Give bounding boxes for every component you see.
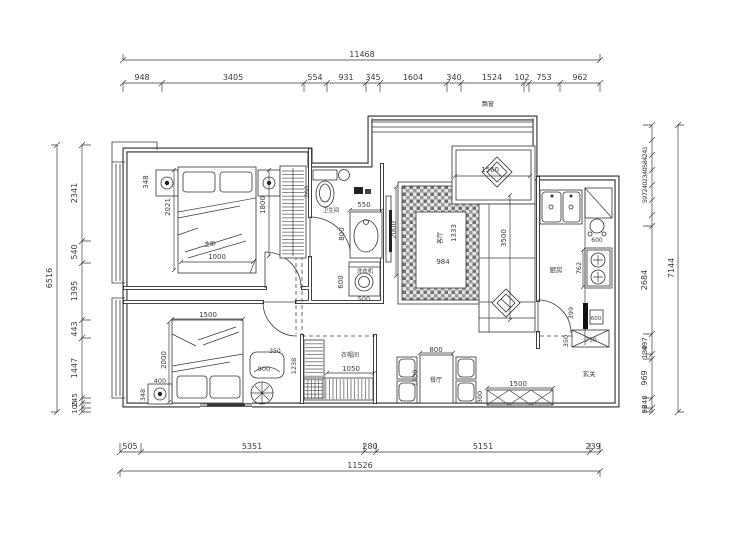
dim-top-seg: 753 [536,73,551,82]
room-label-kitchen: 厨房 [550,265,563,274]
dim-bottom-seg: 280 [362,442,377,451]
dim-master-2021: 2021 [164,198,172,216]
dim-kitchen-399: 399 [567,307,575,319]
dim-top-seg: 962 [572,73,587,82]
dim-bed2-400: 400 [154,377,166,385]
dim-dining-1200: 1200 [411,370,419,387]
dim-bottom-seg: 505 [122,442,137,451]
dim-right-seg: 2684 [640,270,649,290]
dim-top-seg: 948 [134,73,149,82]
dim-bottom-seg: 5151 [473,442,493,451]
dim-left-total: 6516 [45,268,54,288]
dim-living-1560: 1560 [481,166,499,174]
dim-bath-550: 550 [357,201,370,209]
room-label-dining: 餐厅 [430,376,442,384]
bathroom [313,170,382,297]
dimension-bottom: 505 5351 280 5151 239 11526 [117,442,603,477]
room-label-bathroom: 卫生间 [323,206,340,214]
dim-top-seg: 931 [338,73,353,82]
door-bedroom2 [263,302,297,336]
dim-left-seg: 2341 [70,183,79,203]
dim-right-total: 7144 [667,258,676,278]
dim-top-seg: 1604 [403,73,423,82]
living-room [386,146,535,332]
room-label-living: 客厅 [436,232,444,244]
room-label-master: 主卧 [204,240,216,248]
bay-window-top [372,118,533,135]
dim-left-seg: 1395 [70,281,79,301]
dim-top-seg: 1524 [482,73,502,82]
dim-bed2-1238: 1238 [290,358,298,375]
dim-entry-1500: 1500 [509,380,527,388]
dimension-right: 5972402340584241 2684 497 130 969 240 98… [640,122,684,415]
dim-closet-1050: 1050 [342,365,360,373]
dim-kitchen-762: 762 [575,262,583,274]
dim-bed2-800: 800 [258,365,270,373]
dim-bath-760: 760 [303,186,311,198]
dim-right-seg: 98 [641,405,649,414]
room-label-entry: 玄关 [583,369,597,378]
dim-left-seg: 540 [70,244,79,259]
dim-living-3500: 3500 [500,229,508,247]
dim-kitchen-600b: 600 [591,316,602,322]
dim-master-1000: 1000 [208,253,226,261]
dim-bed2-348: 348 [139,389,147,401]
bedroom2 [148,320,284,404]
dim-master-348: 348 [142,175,150,188]
room-label-bay-window: 飘窗 [482,100,494,108]
floor-plan-canvas: 11468 948 3405 554 931 345 1604 340 1524… [0,0,740,555]
bay-window-left-top [112,142,157,283]
dim-living-2000: 2000 [390,221,398,239]
dim-bottom-seg: 239 [585,442,600,451]
dim-kitchen-350: 350 [562,335,570,347]
dim-top-seg: 3405 [223,73,243,82]
dim-bath-500: 500 [358,295,370,303]
dim-top-seg: 554 [307,73,322,82]
dim-right-seg: 969 [640,370,649,385]
dim-living-1333: 1333 [450,224,458,242]
dim-top-seg: 102 [514,73,529,82]
dim-kitchen-600a: 600 [591,237,603,244]
dim-bed2-1500: 1500 [199,311,217,319]
dim-left-seg: 105 [71,400,79,413]
dim-bed2-2000: 2000 [160,351,168,369]
dim-bottom-total: 11526 [347,461,372,470]
dim-right-cluster: 5972402340584241 [641,146,649,203]
label-washer: 洗衣机 [357,267,374,275]
dim-top-seg: 340 [446,73,461,82]
dim-dining-800: 800 [429,346,442,354]
dim-left-seg: 443 [70,321,79,336]
dim-right-seg: 130 [641,345,649,358]
dim-left-seg: 1447 [70,358,79,378]
dim-top-total: 11468 [349,50,374,59]
dim-bottom-seg: 5351 [242,442,262,451]
dimension-left: 2341 540 1395 443 1447 245 105 6516 [45,142,91,415]
dim-kitchen-750: 750 [585,337,597,344]
dim-bath-800: 800 [338,227,346,240]
dim-master-1800: 1800 [259,196,267,214]
room-label-closet: 衣帽间 [341,351,359,359]
dim-bath-600: 600 [337,275,345,288]
dimension-top: 11468 948 3405 554 931 345 1604 340 1524… [120,50,603,92]
master-bedroom [156,166,306,273]
dim-living-984: 984 [436,258,450,266]
closet [304,340,373,400]
dim-top-seg: 345 [365,73,380,82]
dim-bed2-350: 350 [269,348,281,355]
dim-entry-300: 300 [476,391,484,403]
